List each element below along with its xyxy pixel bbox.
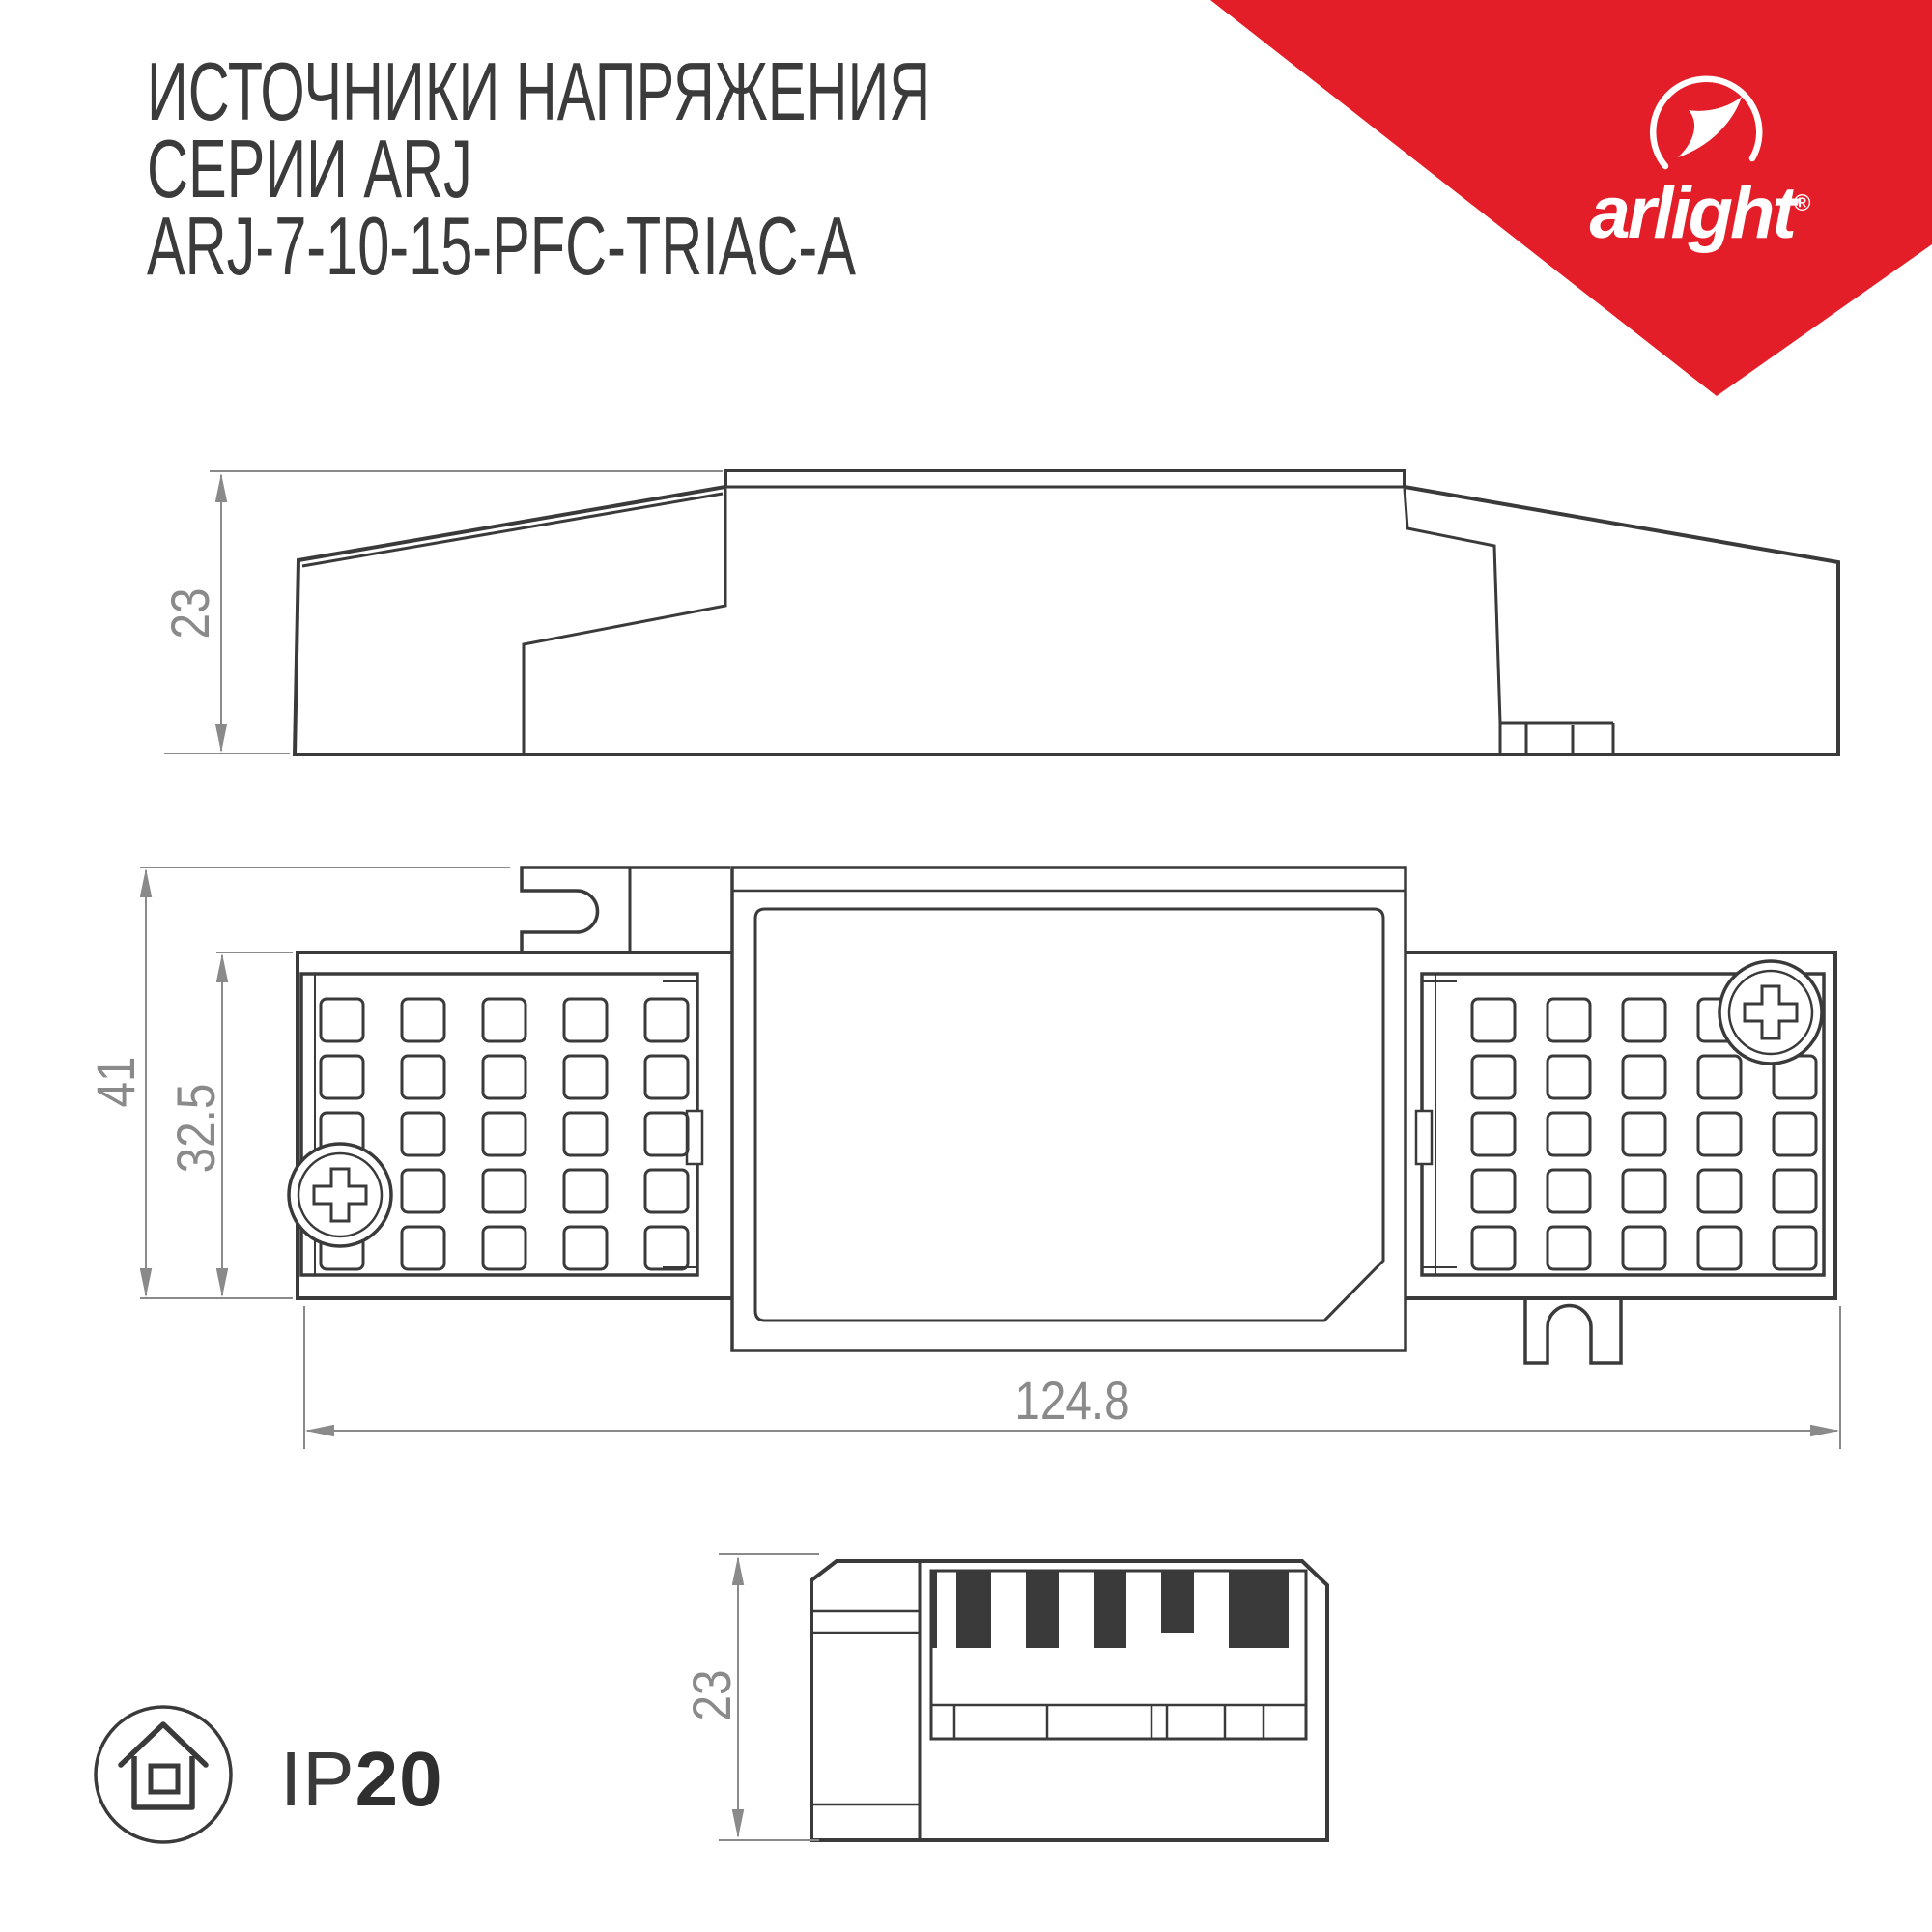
- dimension-label-side-height: 23: [161, 515, 219, 712]
- top-view-drawing: [140, 867, 1840, 1449]
- right-vent-grille: [1416, 961, 1824, 1275]
- side-view-dimension: [164, 471, 723, 753]
- end-view-drawing: [719, 1554, 1327, 1840]
- ip-prefix: IP: [280, 1736, 355, 1822]
- datasheet-page: ИСТОЧНИКИ НАПРЯЖЕНИЯ СЕРИИ ARJ ARJ-7-10-…: [0, 0, 1932, 1932]
- ip-value: 20: [355, 1736, 443, 1822]
- center-cover: [732, 867, 1406, 1350]
- terminal-block: [931, 1571, 1306, 1739]
- left-screw-icon: [289, 1144, 391, 1246]
- title-line-2: СЕРИИ ARJ: [147, 131, 930, 209]
- dimension-label-end-height: 23: [683, 1597, 741, 1794]
- page-title: ИСТОЧНИКИ НАПРЯЖЕНИЯ СЕРИИ ARJ ARJ-7-10-…: [147, 54, 930, 286]
- dimension-label-overall-width: 41: [87, 983, 145, 1180]
- ip-rating-label: IP20: [280, 1735, 443, 1824]
- left-vent-grille: [289, 974, 702, 1275]
- indoor-use-icon: [96, 1707, 231, 1842]
- title-line-3: ARJ-7-10-15-PFC-TRIAC-A: [147, 209, 930, 286]
- brand-logo-text: arlight®: [1565, 177, 1835, 250]
- mounting-tab-bottom: [1525, 1298, 1621, 1363]
- title-line-1: ИСТОЧНИКИ НАПРЯЖЕНИЯ: [147, 54, 930, 131]
- dimension-label-body-width: 32.5: [167, 1030, 225, 1227]
- right-screw-icon: [1719, 961, 1822, 1064]
- side-view-drawing: [164, 470, 1838, 754]
- registered-mark: ®: [1794, 190, 1811, 216]
- brand-name: arlight: [1590, 172, 1794, 254]
- mounting-tab-top: [522, 867, 730, 952]
- dimension-label-length: 124.8: [974, 1372, 1171, 1430]
